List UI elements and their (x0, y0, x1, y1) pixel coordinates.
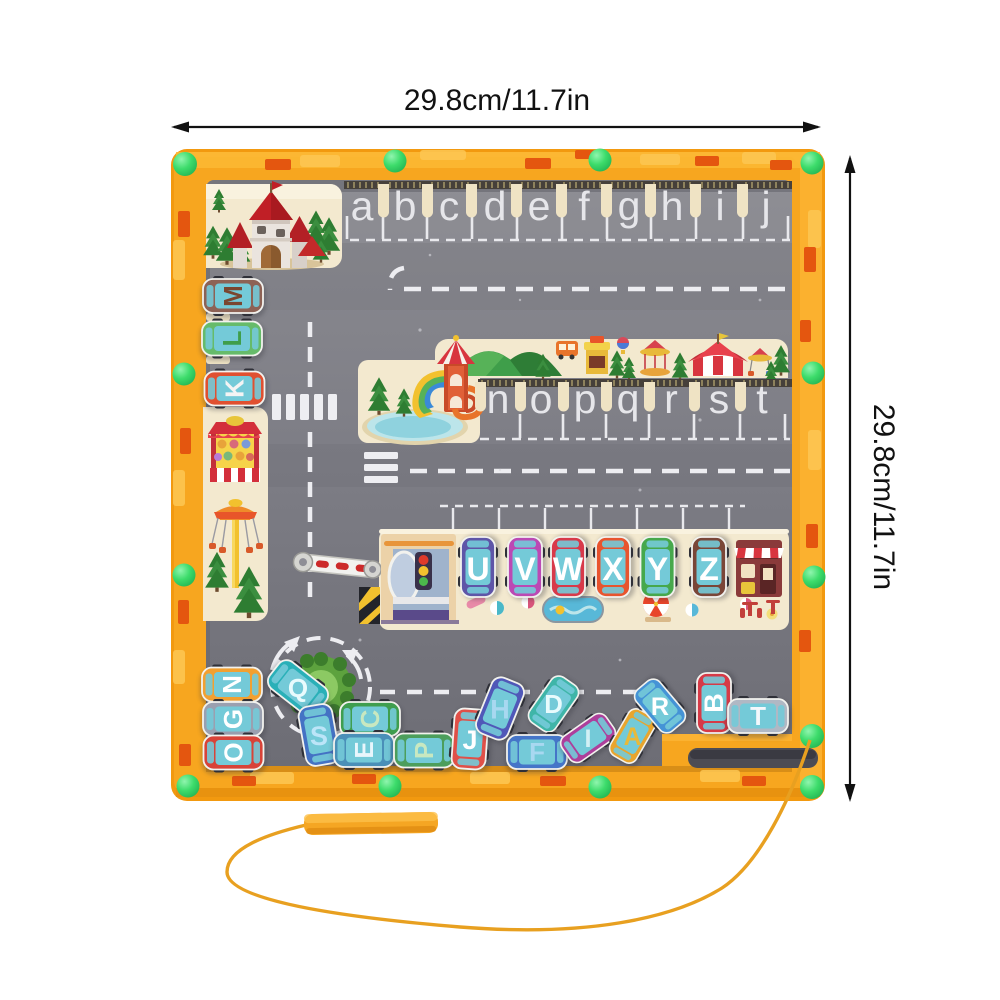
svg-text:g: g (618, 183, 641, 229)
svg-text:H: H (490, 695, 510, 725)
svg-text:F: F (529, 737, 545, 767)
svg-text:f: f (578, 183, 590, 229)
svg-text:j: j (760, 183, 770, 229)
svg-text:h: h (661, 183, 684, 229)
svg-text:e: e (528, 183, 551, 229)
svg-text:S: S (310, 721, 328, 751)
svg-text:Y: Y (647, 551, 668, 587)
svg-text:d: d (484, 183, 507, 229)
svg-text:Q: Q (288, 673, 308, 703)
svg-text:i: i (715, 183, 724, 229)
svg-text:t: t (756, 376, 768, 422)
svg-text:b: b (394, 183, 417, 229)
svg-text:c: c (439, 183, 460, 229)
svg-text:r: r (664, 376, 678, 422)
svg-text:B: B (699, 693, 729, 713)
svg-text:G: G (218, 709, 248, 729)
svg-text:C: C (355, 709, 385, 728)
svg-text:T: T (750, 701, 766, 731)
svg-text:A: A (624, 724, 642, 751)
svg-text:Z: Z (699, 551, 719, 587)
svg-text:K: K (220, 379, 250, 398)
svg-text:q: q (617, 376, 640, 422)
svg-text:N: N (217, 675, 247, 694)
svg-text:X: X (602, 551, 624, 587)
svg-text:p: p (574, 376, 597, 422)
svg-text:I: I (585, 725, 592, 753)
svg-text:n: n (487, 376, 510, 422)
svg-text:o: o (530, 376, 553, 422)
svg-text:E: E (349, 741, 379, 758)
svg-text:M: M (218, 285, 248, 307)
svg-text:L: L (217, 330, 247, 346)
svg-text:a: a (351, 183, 374, 229)
svg-text:29.8cm/11.7in: 29.8cm/11.7in (867, 404, 900, 590)
svg-text:O: O (219, 742, 249, 762)
svg-text:V: V (514, 551, 536, 587)
svg-text:W: W (553, 551, 584, 587)
svg-text:P: P (409, 742, 439, 759)
svg-text:D: D (544, 691, 563, 719)
svg-text:29.8cm/11.7in: 29.8cm/11.7in (404, 84, 590, 117)
svg-text:R: R (651, 693, 669, 721)
svg-text:U: U (466, 551, 489, 587)
svg-text:J: J (462, 725, 477, 755)
svg-text:s: s (709, 376, 730, 422)
